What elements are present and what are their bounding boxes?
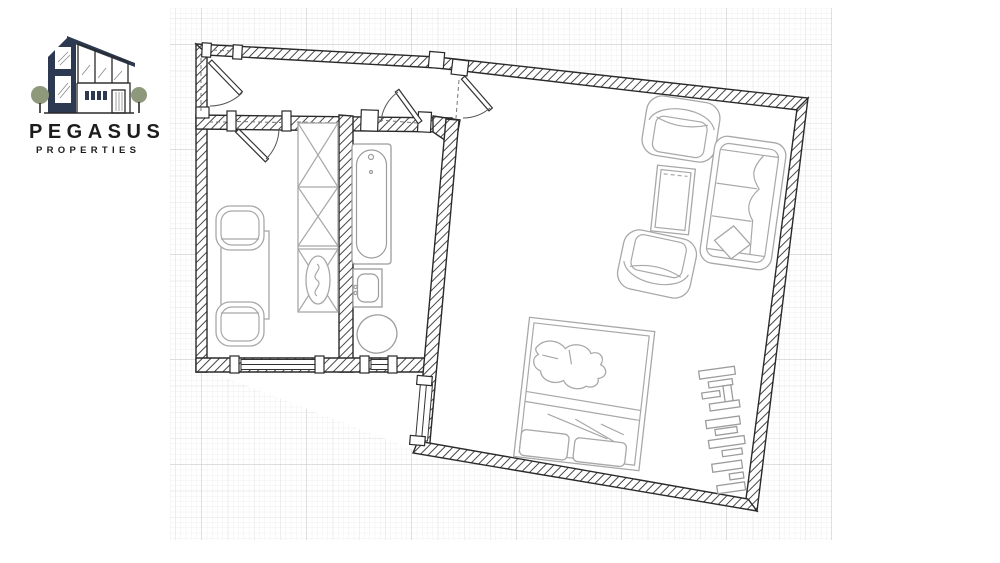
logo-door (112, 90, 125, 113)
wall-divider-study-bath (339, 115, 353, 372)
floorplan-page: PEGASUS PROPERTIES (0, 0, 1000, 563)
chair-top (216, 206, 264, 250)
washbasin (353, 269, 382, 307)
pegasus-logo: PEGASUS PROPERTIES (29, 36, 165, 156)
wardrobe-mirror (306, 256, 330, 304)
logo-house-icon (31, 36, 147, 113)
window-bathroom (371, 360, 390, 370)
armchair-top (640, 94, 722, 165)
logo-roof (67, 36, 135, 67)
chair-bottom (216, 302, 264, 346)
floorplan-drawing: PEGASUS PROPERTIES (0, 0, 1000, 563)
double-bed (514, 317, 655, 470)
wardrobe (298, 123, 338, 312)
window-study (241, 360, 317, 370)
logo-sunroom (78, 44, 128, 83)
brand-name: PEGASUS (29, 121, 165, 143)
bathtub (352, 144, 391, 264)
bed-pillow-left (519, 429, 570, 460)
logo-tree-left (31, 86, 49, 113)
logo-tree-right (131, 87, 147, 113)
coffee-table (651, 165, 696, 235)
brand-tagline: PROPERTIES (36, 145, 140, 156)
logo-small-windows (85, 91, 107, 100)
bed-pillow-right (573, 437, 627, 467)
